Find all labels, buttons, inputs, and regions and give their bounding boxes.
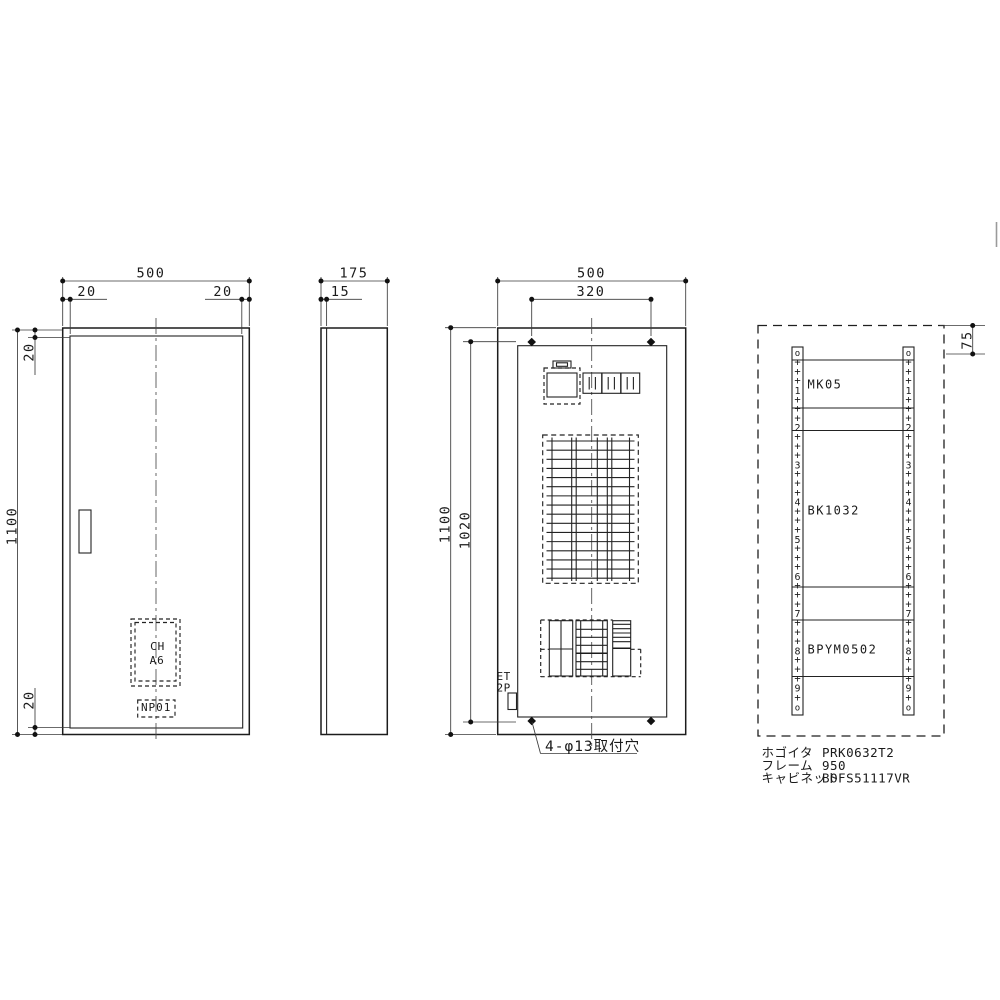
chassis-label-top: CH xyxy=(150,640,165,653)
internal-view-dimensions: 500 320 1100 1020 xyxy=(438,266,689,738)
block-label-mk05: MK05 xyxy=(808,378,843,392)
dim-hole-pitch: 320 xyxy=(577,284,606,300)
nameplate-label: NP01 xyxy=(141,701,172,714)
mounting-hole-bottom-right xyxy=(647,717,656,726)
spec-table: ホゴイタ PRK0632T2 フレーム 950 キャビネット BOFS51117… xyxy=(762,745,911,786)
door-handle xyxy=(79,510,91,553)
spec-value-cabinet: BOFS51117VR xyxy=(822,771,910,786)
dim-front-inset-bottom: 20 xyxy=(22,690,38,709)
side-view-dimensions: 175 15 xyxy=(319,266,390,327)
dim-front-inset-top: 20 xyxy=(22,342,38,361)
dim-front-inset-left: 20 xyxy=(77,284,96,300)
mounting-hole-bottom-left xyxy=(527,717,536,726)
rail-mark: o xyxy=(795,703,800,713)
cabinet-engineering-drawing: CH A6 NP01 500 20 20 1100 20 xyxy=(0,0,1000,1000)
dim-side-depth: 175 xyxy=(340,266,369,282)
dim-front-width: 500 xyxy=(137,266,166,282)
side-outline xyxy=(321,328,387,735)
dim-internal-width: 500 xyxy=(577,266,606,282)
dim-plate-height: 1020 xyxy=(457,511,473,550)
chassis-label-bottom: A6 xyxy=(150,654,165,667)
dim-rail-top-offset: 75 xyxy=(960,330,976,349)
layout-view: MK05 BK1032 BPYM0502 o+++1+++2+++3+++4++… xyxy=(758,323,985,736)
mounting-hole-top-left xyxy=(527,338,536,347)
block-label-bk1032: BK1032 xyxy=(808,504,860,518)
dim-front-height: 1100 xyxy=(5,507,21,546)
mounting-hole-note: 4-φ13取付穴 xyxy=(545,738,640,755)
rail-mark: + xyxy=(794,692,800,704)
main-breaker xyxy=(544,361,580,404)
cabinet-dashed-outline xyxy=(758,326,944,737)
et-breaker: ET 2P xyxy=(497,670,517,710)
et-breaker-body xyxy=(508,693,517,710)
block-label-bpym0502: BPYM0502 xyxy=(808,643,878,657)
front-view: CH A6 NP01 xyxy=(63,318,250,743)
mounting-hole-top-right xyxy=(647,338,656,347)
dim-door-thickness: 15 xyxy=(331,284,350,300)
rail-mark: + xyxy=(905,692,911,704)
dim-front-inset-right: 20 xyxy=(213,284,232,300)
leader-line xyxy=(532,722,541,754)
rail-mark: o xyxy=(906,703,911,713)
internal-view: ET 2P 4-φ13取付穴 xyxy=(497,318,686,755)
bottom-component-group xyxy=(541,620,641,677)
terminal-grid-rows xyxy=(547,441,635,578)
terminal-rail-marks: o+++1+++2+++3+++4+++5+++6+++7+++8+++9+oo… xyxy=(794,349,911,713)
dim-internal-height: 1100 xyxy=(438,505,454,544)
side-view xyxy=(321,328,387,735)
terminal-block-grid xyxy=(543,435,639,583)
